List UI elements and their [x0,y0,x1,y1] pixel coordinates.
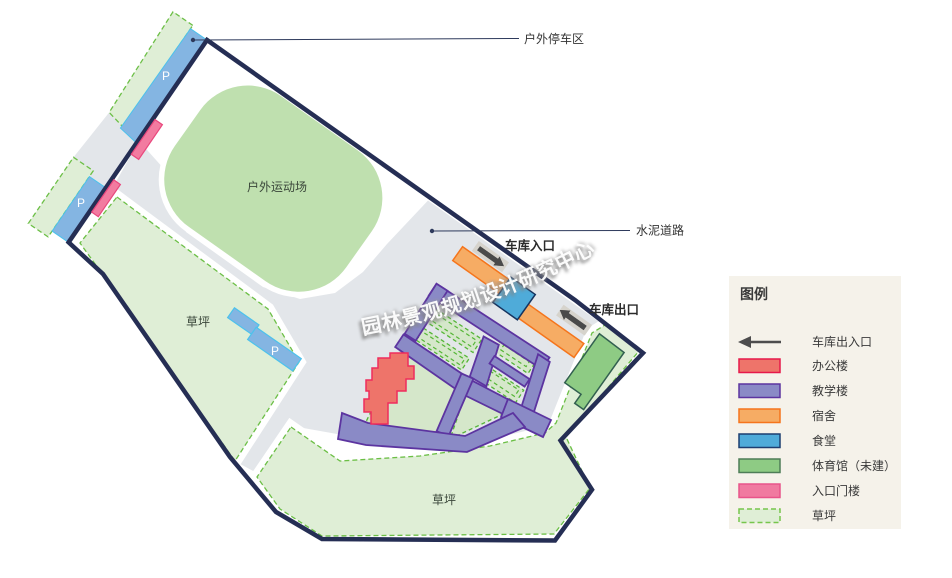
svg-text:宿舍: 宿舍 [812,408,836,423]
svg-text:办公楼: 办公楼 [812,358,848,373]
svg-text:草坪: 草坪 [432,493,456,507]
svg-text:教学楼: 教学楼 [812,383,848,398]
svg-text:食堂: 食堂 [812,433,836,448]
svg-text:车库出入口: 车库出入口 [812,334,872,349]
svg-text:P: P [162,69,170,83]
svg-text:户外停车区: 户外停车区 [524,31,584,46]
svg-text:入口门楼: 入口门楼 [812,483,860,498]
svg-text:户外运动场: 户外运动场 [247,179,307,194]
svg-text:P: P [77,196,85,210]
svg-text:水泥道路: 水泥道路 [636,223,684,238]
svg-text:草坪: 草坪 [186,315,210,329]
svg-text:草坪: 草坪 [812,509,836,523]
svg-text:体育馆（未建）: 体育馆（未建） [812,458,896,473]
svg-text:图例: 图例 [740,286,768,302]
svg-text:车库入口: 车库入口 [505,238,555,253]
svg-text:车库出口: 车库出口 [589,302,639,317]
svg-text:P: P [271,344,279,358]
